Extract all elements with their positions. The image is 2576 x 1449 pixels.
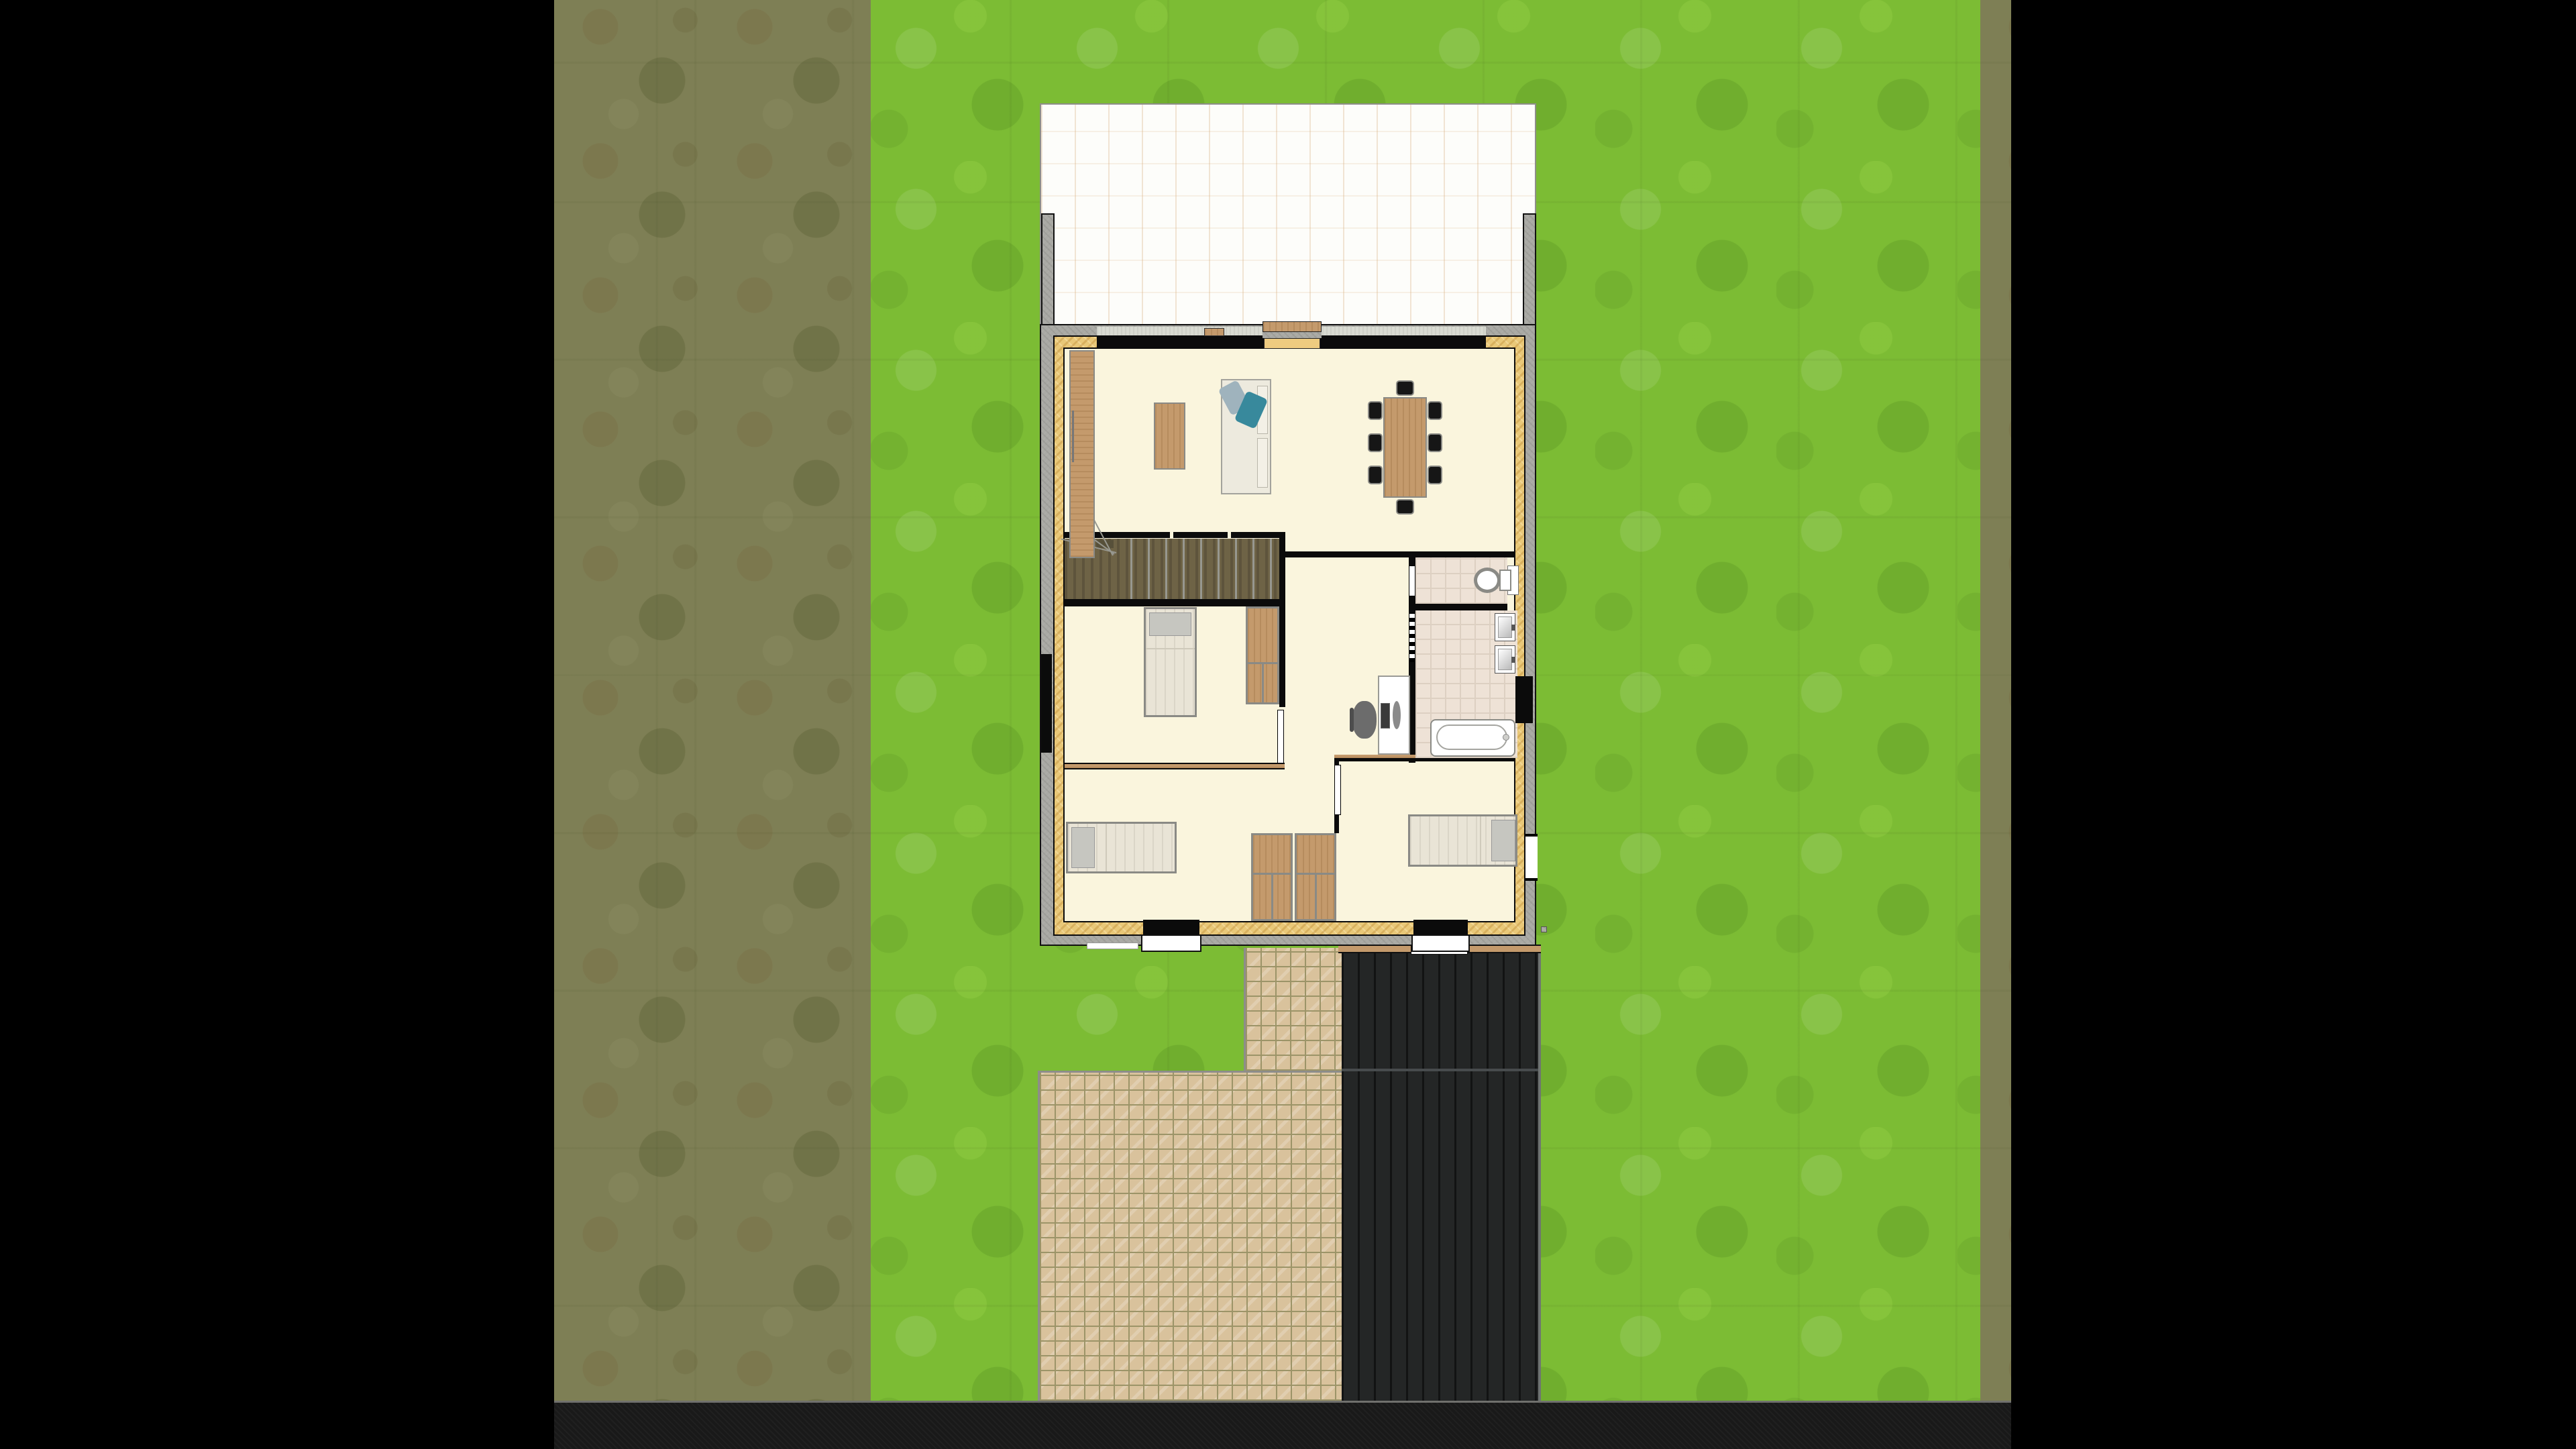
paved-path bbox=[1244, 948, 1342, 1071]
sofa-back-cushion-2 bbox=[1257, 438, 1268, 488]
entrance-threshold bbox=[1264, 338, 1320, 349]
computer-monitor bbox=[1393, 701, 1401, 729]
right-wall-segment bbox=[1515, 676, 1533, 723]
sideboard bbox=[1069, 350, 1095, 558]
top-wall-sill-small bbox=[1204, 328, 1224, 336]
dining-chair-l2 bbox=[1368, 433, 1383, 452]
wardrobe-middle-doorline bbox=[1262, 664, 1264, 704]
bed-middle-foldline bbox=[1146, 648, 1195, 649]
washbasin-2-faucet bbox=[1511, 657, 1515, 663]
door-dashed-bathroom bbox=[1409, 612, 1415, 662]
dining-chair-top bbox=[1396, 380, 1414, 396]
driveway-divider-line bbox=[1342, 1069, 1541, 1071]
dining-chair-bottom bbox=[1396, 499, 1414, 515]
wardrobe-middle bbox=[1246, 606, 1279, 704]
dining-table bbox=[1383, 397, 1427, 498]
wall-under-stairs bbox=[1065, 599, 1285, 606]
washbasin-1 bbox=[1495, 613, 1515, 641]
toilet-tank bbox=[1499, 570, 1511, 591]
wall-gap-b bbox=[1228, 532, 1231, 538]
road-bottom bbox=[554, 1401, 2011, 1449]
bed-bottom-right bbox=[1408, 814, 1517, 867]
driveway-edge-line bbox=[1538, 953, 1541, 1401]
window-right-wall bbox=[1525, 834, 1538, 881]
wall-gap-a bbox=[1170, 532, 1173, 538]
roof-wall-stub-right bbox=[1523, 213, 1536, 325]
site-plan-scene bbox=[554, 0, 2011, 1449]
wall-above-stairs bbox=[1065, 532, 1283, 538]
bathtub bbox=[1430, 719, 1515, 757]
wardrobe-unit-2 bbox=[1295, 833, 1336, 921]
washbasin-2 bbox=[1495, 645, 1515, 674]
dining-chair-l1 bbox=[1368, 401, 1383, 420]
step-strip-bottom bbox=[1087, 943, 1138, 949]
dining-chair-r3 bbox=[1428, 466, 1442, 484]
roof-wall-stub-left bbox=[1041, 213, 1055, 325]
door-leaf-bedroom-mid bbox=[1277, 710, 1284, 767]
sideboard-handle bbox=[1072, 411, 1074, 462]
dining-chair-r1 bbox=[1428, 401, 1442, 420]
wardrobe-unit-1 bbox=[1251, 833, 1293, 921]
stair-treads bbox=[1115, 539, 1279, 599]
wardrobe-unit-2-doorline bbox=[1315, 875, 1317, 919]
door-leaf-bedroom-right bbox=[1334, 765, 1341, 815]
wall-hall-top bbox=[1283, 551, 1515, 557]
house bbox=[1040, 324, 1536, 946]
wall-bedroom-left-top bbox=[1065, 763, 1285, 769]
wall-bedroom-right-top bbox=[1334, 758, 1515, 761]
office-chair-back bbox=[1350, 708, 1354, 732]
office-chair bbox=[1352, 701, 1377, 739]
bed-bottom-left bbox=[1066, 822, 1177, 873]
bed-bottom-right-pillow bbox=[1491, 820, 1515, 861]
door-leaf-toilet bbox=[1409, 566, 1415, 596]
window-sill-bottom-left bbox=[1141, 934, 1201, 952]
computer-tower bbox=[1381, 703, 1390, 729]
driveway-carport bbox=[1342, 953, 1541, 1401]
bed-middle-pillow bbox=[1149, 612, 1191, 636]
double-wardrobe bbox=[1251, 833, 1336, 921]
coffee-table bbox=[1154, 402, 1185, 470]
window-sill-bottom-right bbox=[1411, 934, 1470, 952]
window-left-wall bbox=[1041, 654, 1052, 753]
bathtub-faucet bbox=[1503, 734, 1509, 741]
washbasin-1-bowl bbox=[1498, 616, 1512, 638]
bed-bottom-right-foldline bbox=[1480, 816, 1481, 865]
fence-post bbox=[1541, 926, 1547, 932]
toilet-bowl bbox=[1474, 568, 1501, 593]
dining-chair-r2 bbox=[1428, 433, 1442, 452]
bathtub-inner bbox=[1436, 724, 1507, 750]
bed-bottom-left-pillow bbox=[1071, 827, 1095, 868]
wall-vertical-hall-left bbox=[1279, 532, 1285, 707]
bed-middle bbox=[1144, 607, 1197, 717]
sofa bbox=[1221, 379, 1271, 494]
wardrobe-unit-1-doorline bbox=[1271, 875, 1273, 919]
entrance-step bbox=[1263, 332, 1322, 338]
dining-chair-l3 bbox=[1368, 466, 1383, 484]
roof-terrace bbox=[1040, 103, 1536, 325]
washbasin-2-bowl bbox=[1498, 649, 1512, 670]
staircase bbox=[1065, 539, 1279, 599]
wall-toilet-bottom bbox=[1410, 604, 1507, 610]
bed-bottom-left-foldline bbox=[1106, 824, 1107, 871]
washbasin-1-faucet bbox=[1511, 625, 1515, 631]
paved-patio bbox=[1038, 1071, 1342, 1401]
entrance-door-sill bbox=[1263, 321, 1322, 332]
